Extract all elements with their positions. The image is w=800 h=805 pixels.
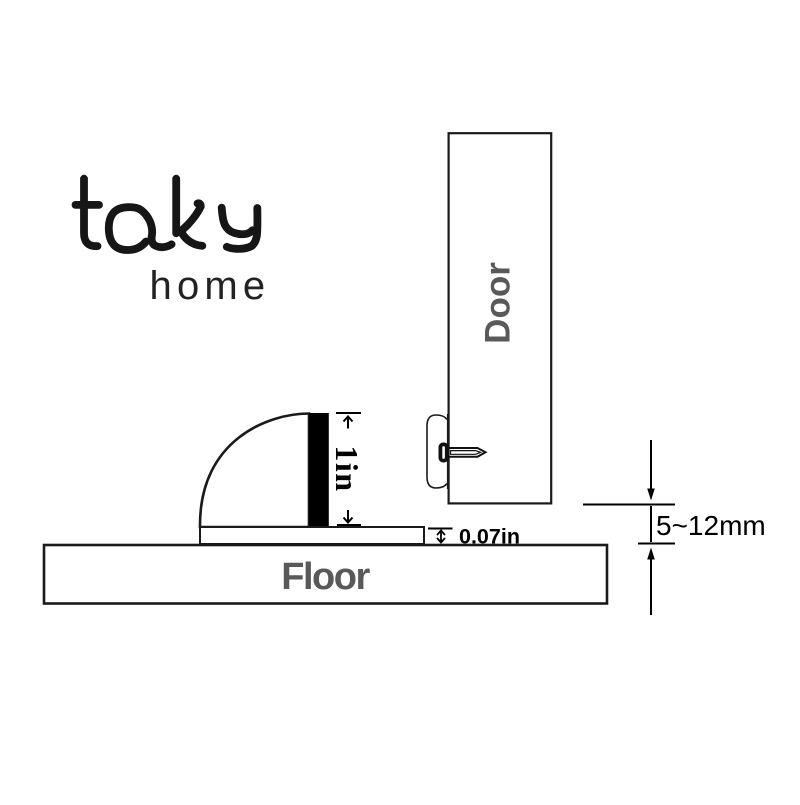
svg-text:5~12mm: 5~12mm <box>656 510 766 541</box>
svg-text:1in: 1in <box>329 445 365 492</box>
svg-text:Floor: Floor <box>281 556 370 598</box>
svg-text:home: home <box>150 264 271 308</box>
svg-text:Door: Door <box>479 262 518 344</box>
svg-text:0.07in: 0.07in <box>459 525 520 549</box>
